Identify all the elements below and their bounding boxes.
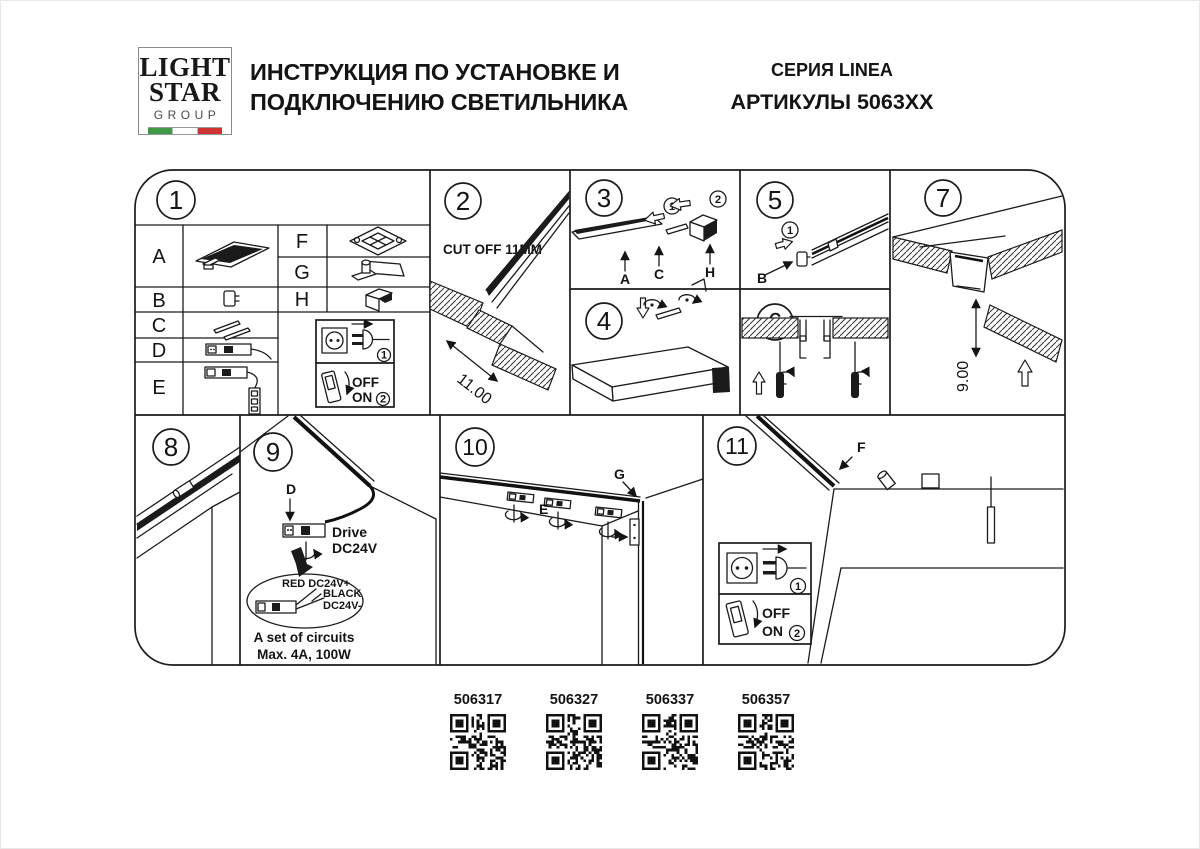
power-connection-box: 1 OFF ON 2 — [316, 320, 394, 407]
article-code: 506317 — [440, 692, 516, 708]
spot-fixture-icon — [877, 470, 896, 490]
switch-on-label: ON — [352, 390, 372, 405]
panel-8-mounted-drawing — [137, 447, 240, 664]
drive-label-2: DC24V — [332, 540, 378, 556]
power-connection-box: 1 OFF ON 2 — [719, 543, 811, 644]
driver-icon — [595, 507, 622, 518]
switch-off-label: OFF — [762, 605, 790, 621]
panel-7-depth-drawing: 9.00 — [893, 196, 1062, 392]
step-2: 2 — [456, 186, 470, 216]
panel-3-assembly-drawing: 1 2 A C H — [572, 191, 726, 287]
circuits-note-1: A set of circuits — [254, 630, 355, 645]
qr-section: 506317 506327 506337 506357 — [440, 692, 804, 770]
part-b-clip-icon — [224, 291, 239, 306]
up-arrow-icon — [753, 372, 765, 394]
panel3-label-h: H — [705, 264, 715, 280]
panel9-label-d: D — [286, 481, 296, 497]
panel10-label-e: E — [539, 501, 548, 517]
part-e-driver-strip-icon — [205, 367, 260, 414]
instruction-sheet: LIGHT STAR GROUP ИНСТРУКЦИЯ ПО УСТАНОВКЕ… — [0, 0, 1200, 849]
plug-icon — [763, 549, 806, 579]
step-7: 7 — [936, 183, 950, 213]
qr-item: 506327 — [536, 692, 612, 770]
up-arrow-icon — [1018, 360, 1032, 386]
plug-step-number: 1 — [381, 350, 387, 362]
driver-icon — [283, 524, 325, 537]
panel-2-cutoff-drawing: CUT OFF 11MM 11.00 — [430, 192, 569, 408]
wire-black-label-2: DC24V- — [323, 600, 362, 612]
panel3-step-2: 2 — [715, 194, 721, 206]
panel5-label-b: B — [757, 270, 767, 286]
drive-label-1: Drive — [332, 524, 367, 540]
pendant-fixture-icon — [988, 477, 995, 543]
recess-depth-dimension: 9.00 — [955, 361, 972, 392]
switch-on-label: ON — [762, 623, 783, 639]
part-h-corner-icon — [366, 289, 392, 311]
step-1: 1 — [169, 185, 183, 215]
plug-icon — [352, 324, 389, 349]
screwdriver-icon — [851, 342, 869, 398]
wire-black-label-1: BLACK — [323, 588, 362, 600]
panel10-label-g: G — [614, 466, 625, 482]
panel-10-install-drawing: E G — [440, 466, 703, 664]
part-label-c: C — [152, 315, 166, 337]
panel-4-fixing-drawing — [572, 279, 730, 401]
panel3-label-a: A — [620, 271, 630, 287]
panel-6-section-drawing — [742, 317, 888, 399]
part-f-recess-box-icon — [350, 227, 406, 255]
qr-code — [450, 714, 506, 770]
part-label-e: E — [152, 377, 165, 399]
part-label-d: D — [152, 340, 166, 362]
part-label-f: F — [296, 231, 308, 253]
step-11: 11 — [725, 433, 749, 459]
part-c-pins-icon — [214, 321, 250, 340]
step-4: 4 — [597, 306, 611, 336]
qr-item: 506337 — [632, 692, 708, 770]
panel-5-clip-drawing: 1 B — [757, 214, 888, 286]
switch-step-number: 2 — [380, 394, 386, 406]
insert-thick-arrow-icon — [291, 547, 313, 577]
panel5-step-1: 1 — [787, 225, 793, 237]
qr-item: 506317 — [440, 692, 516, 770]
step-5: 5 — [768, 185, 782, 215]
switch-off-label: OFF — [352, 375, 379, 390]
cutoff-dimension: 11.00 — [454, 371, 495, 408]
part-d-driver-icon — [206, 344, 271, 359]
cylinder-fixture-icon — [922, 474, 939, 488]
switch-icon — [726, 601, 749, 638]
screwdriver-icon — [776, 342, 794, 398]
panel-1-parts-table: A B C D E F G H — [135, 225, 430, 415]
switch-icon — [321, 371, 341, 403]
step-3: 3 — [597, 183, 611, 213]
panel11-label-f: F — [857, 439, 866, 455]
article-code: 506337 — [632, 692, 708, 708]
plug-step-number: 1 — [795, 581, 801, 593]
corner-strip-icon — [630, 519, 639, 545]
article-code: 506327 — [536, 692, 612, 708]
driver-icon — [507, 492, 534, 503]
circuits-note-2: Max. 4A, 100W — [257, 647, 351, 662]
panel-11-result-drawing: F — [719, 416, 1063, 663]
qr-code — [642, 714, 698, 770]
driver-icon — [256, 601, 296, 613]
switch-step-number: 2 — [794, 628, 800, 640]
qr-code — [546, 714, 602, 770]
step-9: 9 — [266, 437, 280, 467]
socket-icon — [727, 553, 757, 583]
part-label-a: A — [152, 246, 166, 268]
part-label-b: B — [152, 290, 165, 312]
article-code: 506357 — [728, 692, 804, 708]
part-label-h: H — [295, 289, 309, 311]
qr-code — [738, 714, 794, 770]
socket-icon — [322, 328, 347, 353]
panel3-label-c: C — [654, 266, 664, 282]
step-10: 10 — [462, 434, 488, 460]
step-8: 8 — [164, 432, 178, 462]
qr-item: 506357 — [728, 692, 804, 770]
part-label-g: G — [294, 262, 310, 284]
part-g-bracket-icon — [352, 260, 404, 280]
part-a-profile-icon — [196, 242, 269, 269]
